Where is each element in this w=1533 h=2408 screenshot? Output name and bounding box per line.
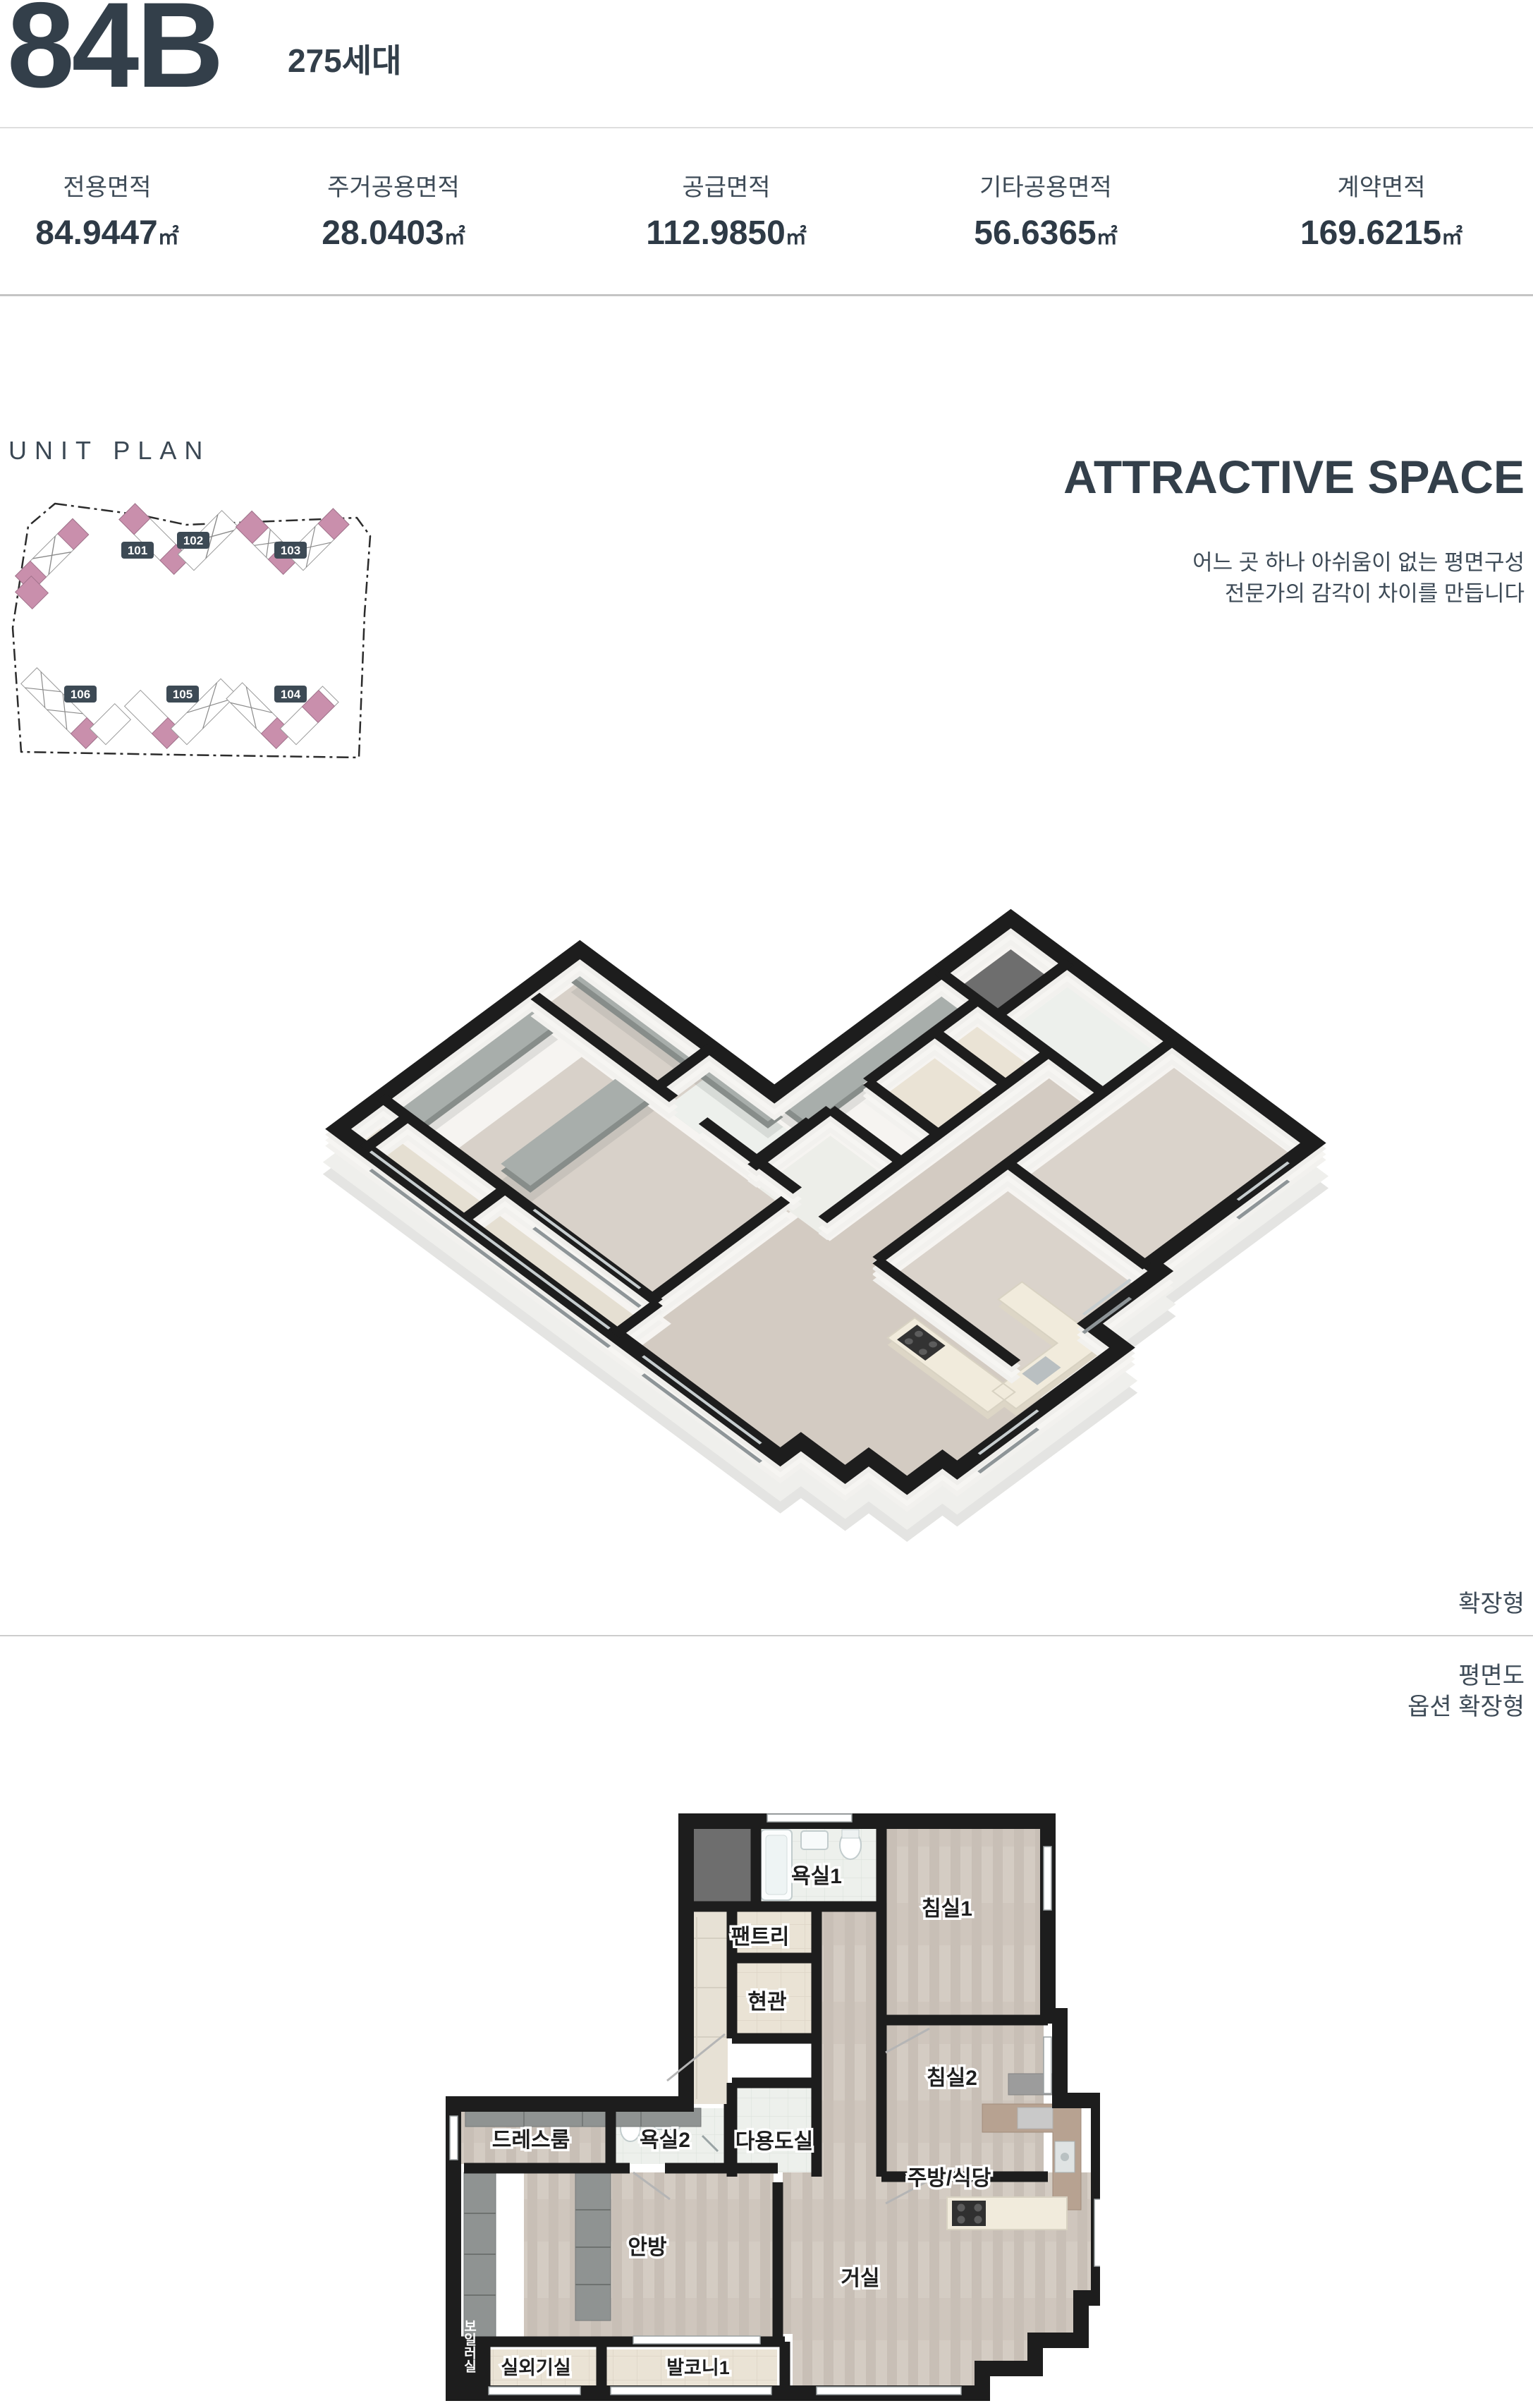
bed1-floor	[886, 1825, 1044, 2016]
room-label-kitchen: 주방/식당	[908, 2167, 991, 2190]
attractive-space-title: ATTRACTIVE SPACE	[1063, 450, 1525, 504]
room-label-living: 거실	[841, 2267, 879, 2290]
area-stat-common-residential: 주거공용면적 28.0403㎡	[322, 168, 465, 253]
bed2-floor	[886, 2024, 1044, 2172]
area-stat-other-common: 기타공용면적 56.6365㎡	[974, 168, 1118, 253]
room-label-entrance: 현관	[747, 1990, 786, 2014]
header-divider	[0, 127, 1533, 128]
area-value: 56.6365㎡	[974, 214, 1118, 253]
area-stat-exclusive: 전용면적 84.9447㎡	[35, 168, 179, 253]
room-label-boiler: 보일러실	[462, 2319, 477, 2373]
area-unit: ㎡	[158, 226, 179, 249]
svg-text:106: 106	[71, 688, 90, 701]
hall-floor	[819, 1909, 879, 2175]
area-value: 169.6215㎡	[1300, 214, 1462, 253]
building-badge-104: 104	[274, 686, 307, 703]
area-label: 공급면적	[646, 168, 807, 202]
building-106	[21, 668, 131, 749]
building-badge-102: 102	[177, 532, 209, 549]
unit-type-title: 84B	[7, 0, 221, 106]
floor-plan-2d: 욕실1 침실1 팬트리 현관 침실2 다용도실 드레스룸 욕실2 주방/식당 안…	[422, 1804, 1100, 2405]
area-value: 28.0403㎡	[322, 214, 465, 253]
area-value: 84.9447㎡	[35, 214, 179, 253]
room-label-balcony1: 발코니1	[666, 2357, 730, 2378]
svg-text:101: 101	[128, 544, 147, 557]
building-101	[16, 518, 89, 609]
building-103	[236, 509, 350, 574]
svg-text:102: 102	[183, 534, 203, 547]
area-unit: ㎡	[1441, 226, 1462, 249]
area-label: 계약면적	[1300, 168, 1462, 202]
building-badge-105: 105	[166, 686, 199, 703]
plan-note-line1: 평면도	[1458, 1656, 1525, 1691]
room-label-bed1: 침실1	[922, 1897, 972, 1921]
room-label-pantry: 팬트리	[731, 1926, 790, 1949]
households-count: 275세대	[288, 35, 401, 82]
attractive-space-subtitle-1: 어느 곳 하나 아쉬움이 없는 평면구성	[1192, 545, 1525, 576]
room-label-bed2: 침실2	[927, 2067, 977, 2090]
building-badge-103: 103	[274, 542, 307, 559]
area-label: 주거공용면적	[322, 168, 465, 202]
room-label-bath2: 욕실2	[640, 2129, 690, 2152]
site-plan-map: 101 102 103 106 105 104	[6, 485, 375, 763]
area-unit: ㎡	[1097, 226, 1118, 249]
room-label-outdoor-unit: 실외기실	[501, 2357, 570, 2378]
attractive-space-subtitle-2: 전문가의 감각이 차이를 만듭니다	[1225, 576, 1525, 607]
shaft-area	[694, 1829, 756, 1907]
expanded-type-tag: 확장형	[1458, 1584, 1525, 1619]
building-badge-106: 106	[64, 686, 97, 703]
area-label: 기타공용면적	[974, 168, 1118, 202]
svg-text:105: 105	[173, 688, 193, 701]
brochure-page: 84B 275세대 전용면적 84.9447㎡ 주거공용면적 28.0403㎡ …	[0, 0, 1533, 2408]
area-stat-supply: 공급면적 112.9850㎡	[646, 168, 807, 253]
floor-plan-3d	[268, 741, 1368, 1636]
svg-text:104: 104	[281, 688, 301, 701]
building-badge-101: 101	[121, 542, 154, 559]
area-value: 112.9850㎡	[646, 214, 807, 253]
room-label-dress: 드레스룸	[492, 2129, 570, 2152]
area-label: 전용면적	[35, 168, 179, 202]
room-label-master: 안방	[628, 2236, 667, 2259]
plan-divider	[0, 1635, 1533, 1636]
area-stat-contract: 계약면적 169.6215㎡	[1300, 168, 1462, 253]
section-divider	[0, 294, 1533, 296]
room-label-bath1: 욕실1	[791, 1865, 842, 1888]
svg-text:103: 103	[281, 544, 300, 557]
area-unit: ㎡	[786, 226, 807, 249]
unit-plan-title: UNIT PLAN	[8, 436, 210, 466]
area-unit: ㎡	[444, 226, 465, 249]
room-label-utility: 다용도실	[735, 2130, 813, 2153]
plan-note-line2: 옵션 확장형	[1407, 1687, 1525, 1722]
